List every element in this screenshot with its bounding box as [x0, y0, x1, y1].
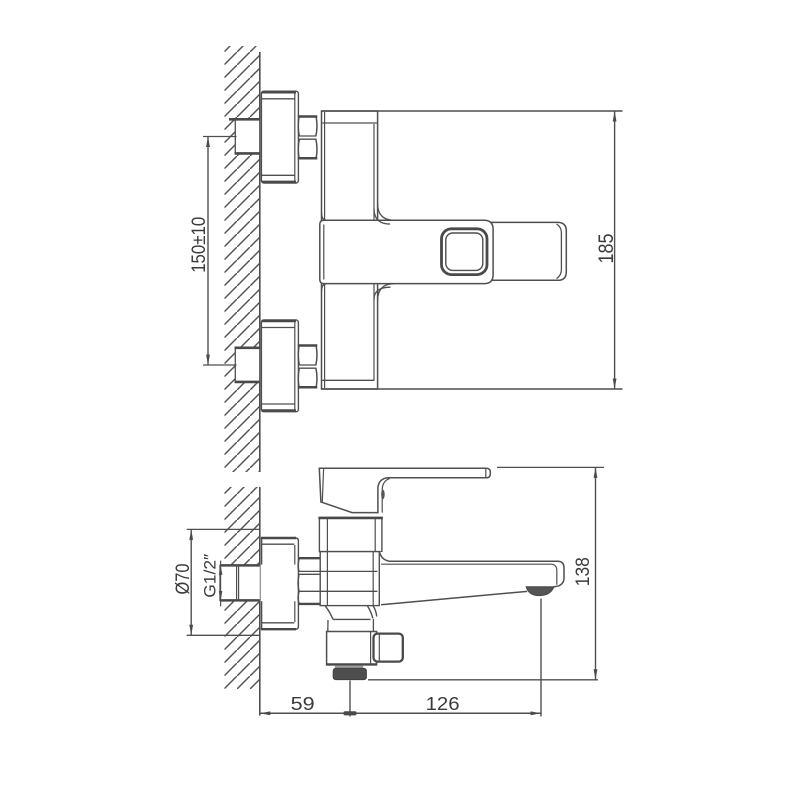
svg-text:59: 59: [291, 694, 315, 714]
svg-text:138: 138: [572, 557, 594, 586]
svg-text:185: 185: [595, 234, 618, 264]
svg-text:G1/2″: G1/2″: [201, 554, 220, 598]
svg-text:150±10: 150±10: [189, 217, 210, 273]
svg-text:126: 126: [426, 694, 460, 714]
svg-text:Ø70: Ø70: [173, 564, 194, 595]
